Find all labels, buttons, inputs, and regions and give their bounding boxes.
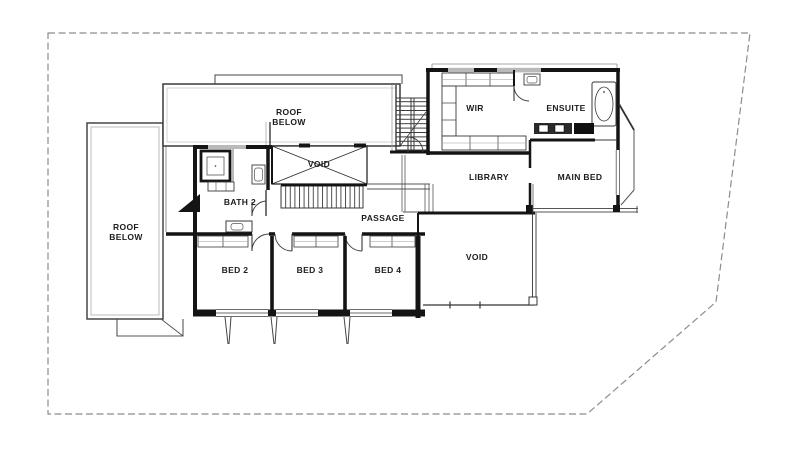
bath2-toilet [252, 165, 265, 184]
roof-below-left [87, 123, 183, 336]
bath2-window [208, 145, 246, 149]
ensuite-toilet [524, 74, 540, 85]
wir-ensuite-mainbed-wing [402, 64, 638, 213]
ensuite-bathtub [592, 82, 616, 126]
bath2-vanity [226, 221, 252, 232]
bed2-window [216, 309, 268, 318]
secondary-stair [390, 85, 430, 152]
bed4-wardrobe [370, 236, 415, 247]
bed2-wardrobe [198, 236, 248, 247]
main-void [418, 184, 537, 309]
shower [201, 151, 230, 181]
bed3-door [275, 234, 292, 251]
downpipe-marks [225, 317, 350, 344]
roof-below-top [163, 75, 402, 146]
bed3-wardrobe [294, 236, 338, 247]
bath2-shelf [208, 182, 234, 191]
core-block [166, 144, 430, 345]
floor-plan-drawing [0, 0, 800, 456]
window-north-2 [497, 68, 541, 73]
bath2-door-arc [252, 201, 266, 216]
floor-plan-page: ROOF BELOW ROOF BELOW VOID BATH 2 PASSAG… [0, 0, 800, 456]
wir-door-arc [514, 86, 529, 101]
ensuite-vanity [534, 123, 594, 134]
eave-diagonal [619, 104, 634, 130]
bed4-door [345, 234, 362, 251]
upper-void [272, 144, 367, 185]
bed4-window [350, 309, 392, 318]
bed3-window [276, 309, 318, 318]
bed2-door [252, 234, 269, 251]
window-north-1 [448, 68, 474, 73]
main-stair [281, 184, 430, 208]
